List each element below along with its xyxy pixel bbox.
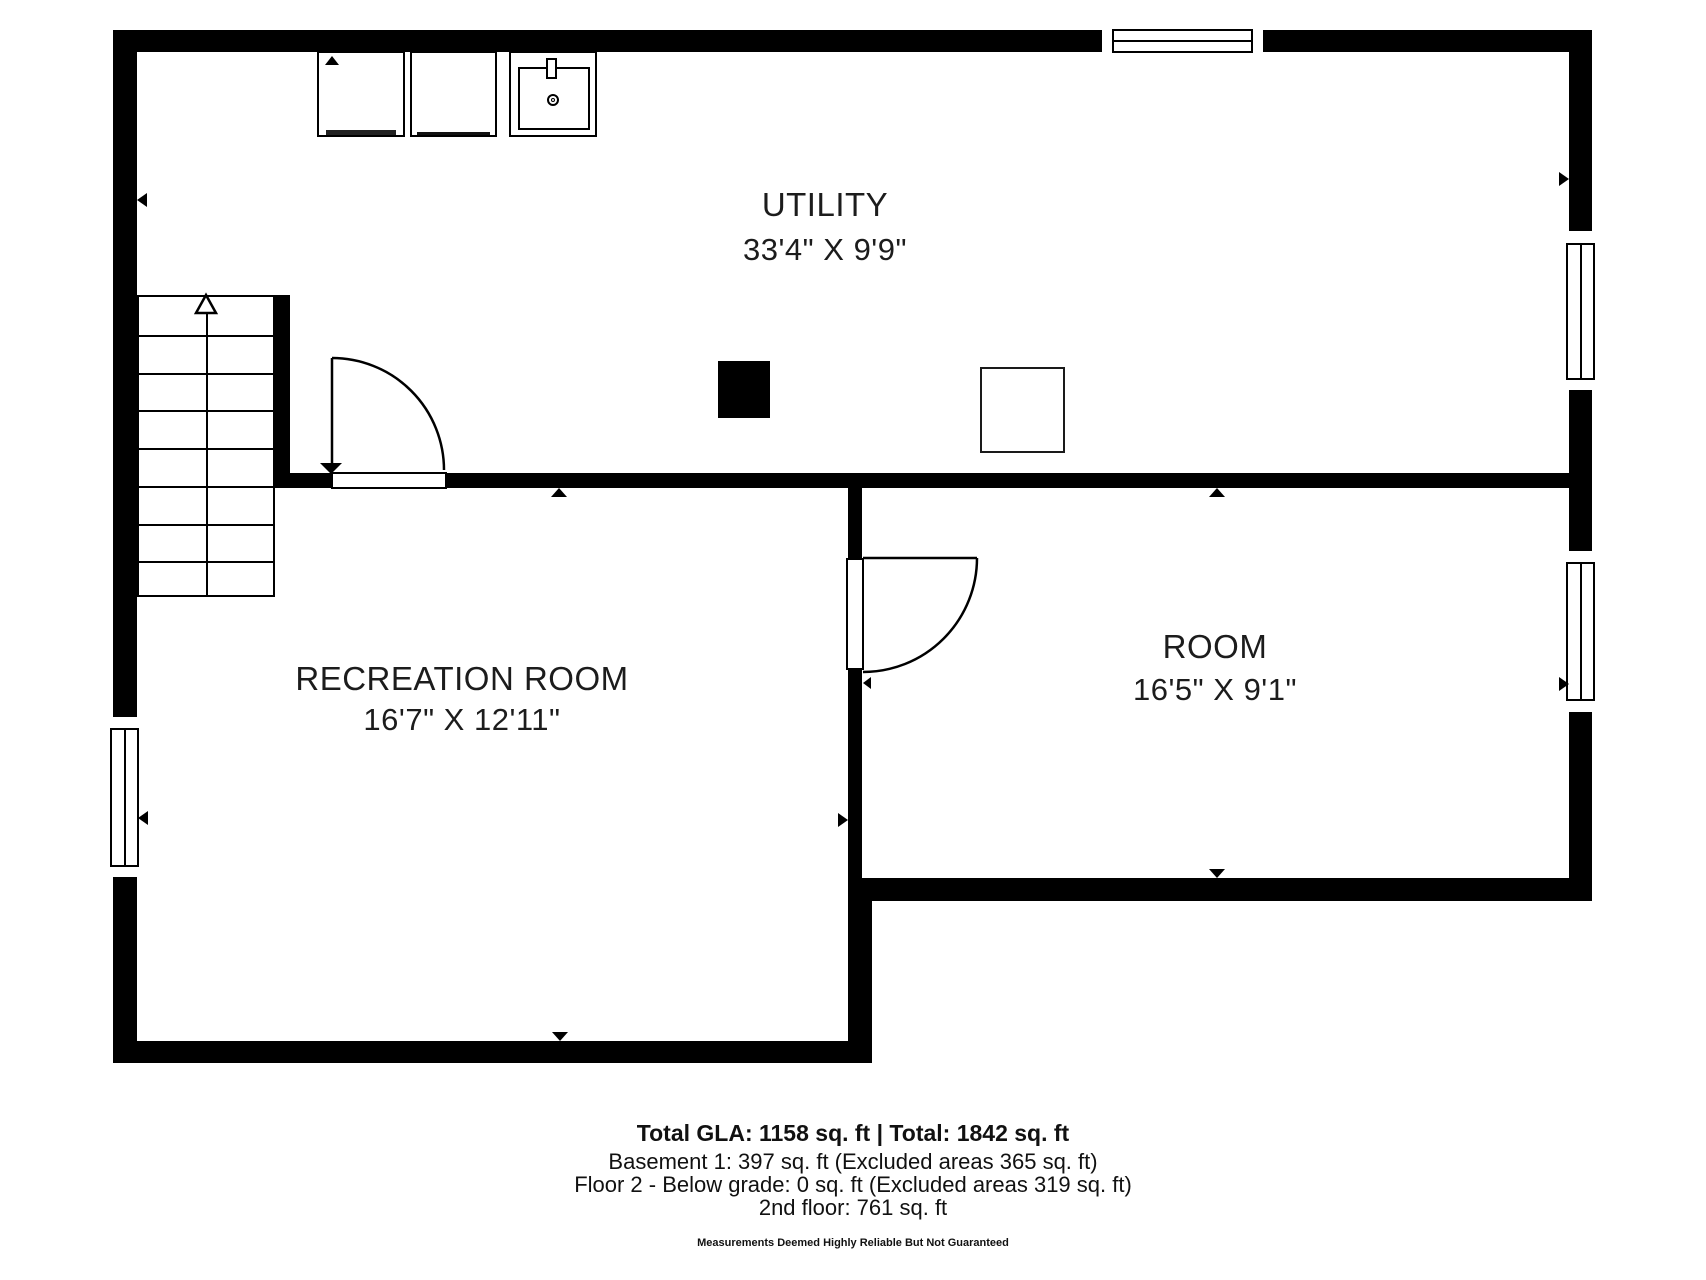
right-wall [1569,30,1592,901]
furnace-icon [718,361,770,418]
room-door-threshold [846,558,864,670]
laundry-sink-icon [509,51,597,137]
marker-down-room [1209,869,1225,878]
recreation-room-dimensions: 16'7" X 12'11" [262,702,662,738]
marker-left-utility [137,193,147,207]
appliance-base [417,132,490,135]
stair-direction-line [206,297,208,595]
marker-right-utility [1559,172,1569,186]
utility-room-dimensions: 33'4" X 9'9" [625,232,1025,268]
top-window-icon [1112,29,1253,53]
appliance-base [326,130,396,135]
drain-icon [547,94,559,106]
room-dimensions: 16'5" X 9'1" [1015,672,1415,708]
top-wall [113,30,1592,52]
washer-icon [317,51,405,137]
window-mullion [1580,245,1582,378]
staircase-up-icon [137,295,275,597]
utility-bottom-wall [275,473,1569,488]
marker-up-rec [551,488,567,497]
utility-door-arc [332,358,444,470]
marker-left-rec [138,811,148,825]
second-floor-area-line: 2nd floor: 761 sq. ft [0,1195,1706,1221]
room-bottom-wall [848,878,1592,901]
window-mullion [124,730,126,865]
left-wall [113,30,137,1063]
disclaimer-text: Measurements Deemed Highly Reliable But … [0,1237,1706,1249]
utility-right-window-icon [1566,243,1595,380]
marker-down-rec [552,1032,568,1041]
room-right-window-icon [1566,562,1595,701]
recreation-room-label: RECREATION ROOM [262,660,662,698]
marker-right-recwall [838,813,848,827]
room-door-arc [863,558,977,672]
room-label: ROOM [1015,628,1415,666]
window-mullion [1114,40,1251,42]
faucet-icon [546,58,557,79]
equipment-pad-icon [980,367,1065,453]
utility-door-swing-arrow [320,463,342,474]
window-mullion [1580,564,1582,699]
rec-bottom-wall [113,1041,872,1063]
interior-divider-wall [848,473,862,901]
rec-left-window-icon [110,728,139,867]
appliance-marker [325,56,339,65]
dryer-icon [410,51,497,137]
utility-door-threshold [331,472,447,489]
rec-right-wall [848,878,872,1063]
floorplan-canvas: UTILITY 33'4" X 9'9" RECREATION ROOM 16'… [0,0,1706,1280]
total-gla-line: Total GLA: 1158 sq. ft | Total: 1842 sq.… [0,1120,1706,1147]
stair-side-wall [275,295,290,488]
marker-right-room [1559,677,1569,691]
room-door-swing-arrow [863,677,871,689]
marker-up-room [1209,488,1225,497]
utility-room-label: UTILITY [625,186,1025,224]
drain-inner [551,98,555,102]
